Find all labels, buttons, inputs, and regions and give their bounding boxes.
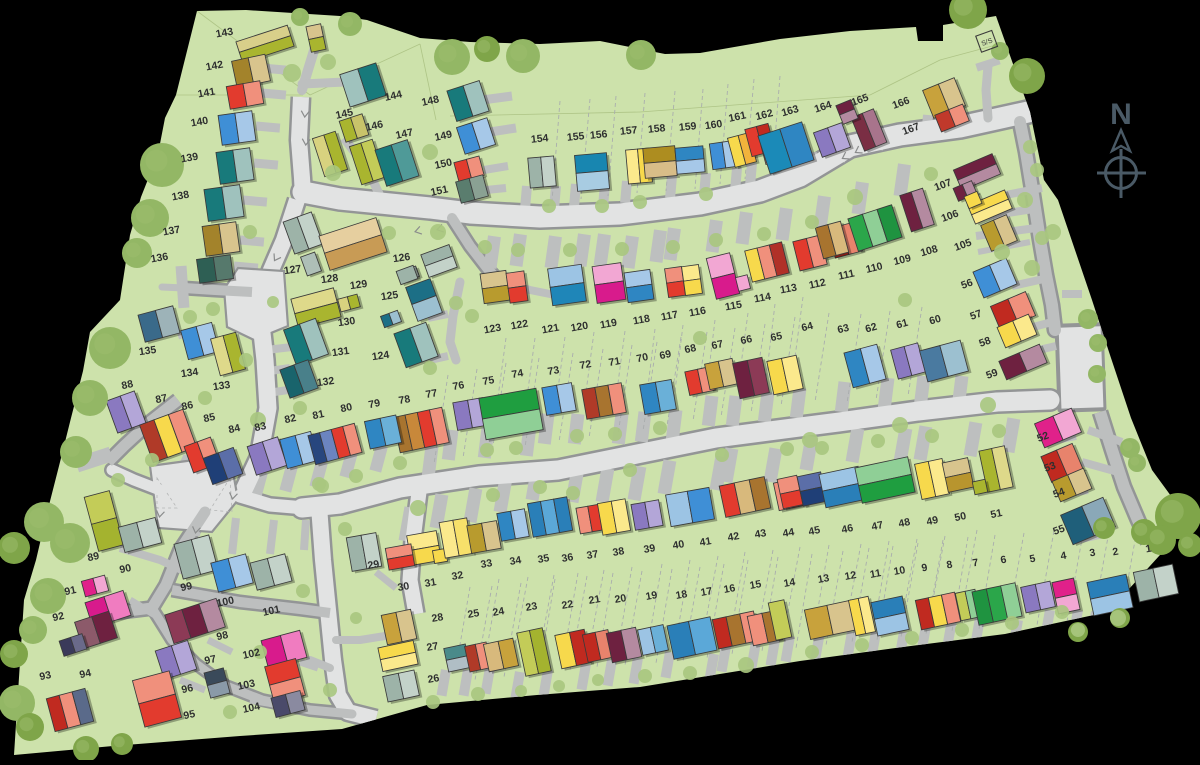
svg-text:15: 15 xyxy=(749,578,763,592)
svg-text:11: 11 xyxy=(869,567,882,581)
svg-text:76: 76 xyxy=(452,379,466,393)
svg-text:78: 78 xyxy=(398,393,412,407)
svg-text:155: 155 xyxy=(566,130,585,144)
svg-text:75: 75 xyxy=(482,374,496,388)
svg-text:16: 16 xyxy=(723,582,737,596)
svg-text:35: 35 xyxy=(537,552,551,566)
svg-text:10: 10 xyxy=(893,564,907,578)
svg-text:129: 129 xyxy=(349,278,368,292)
svg-text:12: 12 xyxy=(844,569,858,583)
svg-text:134: 134 xyxy=(180,366,199,380)
svg-text:130: 130 xyxy=(337,315,356,329)
svg-text:42: 42 xyxy=(727,530,741,544)
svg-text:133: 133 xyxy=(212,379,231,393)
svg-text:14: 14 xyxy=(783,576,797,590)
svg-text:17: 17 xyxy=(700,585,714,599)
svg-text:77: 77 xyxy=(425,387,439,401)
svg-text:36: 36 xyxy=(561,551,575,565)
svg-text:33: 33 xyxy=(480,557,494,571)
svg-text:19: 19 xyxy=(645,589,659,603)
svg-text:71: 71 xyxy=(608,355,622,369)
svg-text:18: 18 xyxy=(675,588,689,602)
svg-text:39: 39 xyxy=(643,542,657,556)
svg-text:154: 154 xyxy=(530,132,549,146)
svg-text:156: 156 xyxy=(589,128,608,142)
svg-text:127: 127 xyxy=(283,263,302,277)
svg-text:160: 160 xyxy=(704,118,723,132)
svg-text:23: 23 xyxy=(525,600,539,614)
svg-text:74: 74 xyxy=(511,367,525,381)
svg-text:124: 124 xyxy=(371,349,390,363)
svg-text:34: 34 xyxy=(509,554,523,568)
svg-text:37: 37 xyxy=(586,548,600,562)
svg-text:40: 40 xyxy=(672,538,686,552)
svg-text:29: 29 xyxy=(367,558,381,572)
svg-text:21: 21 xyxy=(588,593,602,607)
svg-text:72: 72 xyxy=(579,358,593,372)
svg-text:28: 28 xyxy=(431,611,445,625)
svg-text:132: 132 xyxy=(316,375,335,389)
svg-text:159: 159 xyxy=(678,120,697,134)
svg-text:128: 128 xyxy=(320,272,339,286)
svg-text:24: 24 xyxy=(492,605,506,619)
svg-text:41: 41 xyxy=(699,535,713,549)
svg-text:158: 158 xyxy=(647,122,666,136)
svg-text:25: 25 xyxy=(467,607,481,621)
svg-text:22: 22 xyxy=(561,598,575,612)
svg-text:125: 125 xyxy=(380,289,399,303)
svg-text:44: 44 xyxy=(782,526,796,540)
svg-text:157: 157 xyxy=(619,124,638,138)
svg-text:26: 26 xyxy=(427,672,441,686)
svg-text:73: 73 xyxy=(547,364,561,378)
svg-text:43: 43 xyxy=(754,527,768,541)
svg-text:38: 38 xyxy=(612,545,626,559)
svg-text:13: 13 xyxy=(817,572,831,586)
svg-text:32: 32 xyxy=(451,569,465,583)
svg-text:N: N xyxy=(1110,98,1132,131)
svg-text:30: 30 xyxy=(397,580,411,594)
svg-text:135: 135 xyxy=(138,344,157,358)
svg-text:20: 20 xyxy=(614,592,628,606)
svg-text:31: 31 xyxy=(424,576,438,590)
svg-text:131: 131 xyxy=(331,345,350,359)
svg-text:27: 27 xyxy=(426,640,440,654)
svg-text:126: 126 xyxy=(392,251,411,265)
